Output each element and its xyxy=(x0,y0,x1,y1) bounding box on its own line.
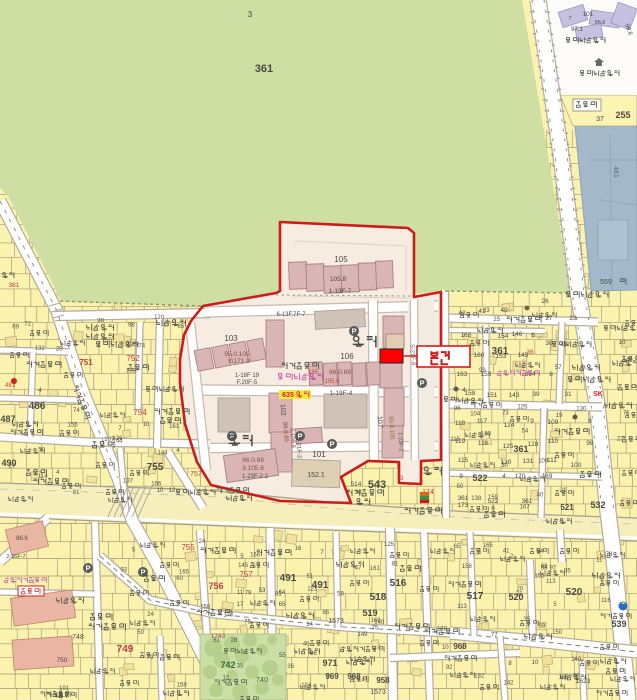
svg-text:757: 757 xyxy=(239,570,253,579)
svg-text:53: 53 xyxy=(259,588,266,594)
svg-text:55: 55 xyxy=(279,653,286,659)
svg-text:170: 170 xyxy=(515,473,526,480)
svg-text:F.20F-5: F.20F-5 xyxy=(237,380,258,386)
svg-text:968: 968 xyxy=(453,642,467,651)
svg-text:742: 742 xyxy=(220,660,235,670)
svg-text:361: 361 xyxy=(513,444,528,454)
svg-text:125: 125 xyxy=(503,443,514,450)
svg-text:521: 521 xyxy=(560,503,574,512)
svg-text:37: 37 xyxy=(596,116,604,123)
svg-text:146: 146 xyxy=(512,331,523,338)
svg-text:123: 123 xyxy=(307,586,318,592)
svg-text:31: 31 xyxy=(564,391,572,398)
svg-text:364: 364 xyxy=(525,371,536,378)
svg-text:113: 113 xyxy=(457,604,467,610)
svg-text:69: 69 xyxy=(12,324,19,330)
svg-text:109: 109 xyxy=(538,459,549,465)
svg-text:118: 118 xyxy=(455,420,466,427)
svg-text:95.0.105: 95.0.105 xyxy=(224,351,250,358)
svg-text:757: 757 xyxy=(190,471,202,478)
svg-text:752: 752 xyxy=(126,354,140,363)
svg-text:522: 522 xyxy=(472,473,487,483)
svg-text:514: 514 xyxy=(351,481,362,488)
svg-text:1-18F 19: 1-18F 19 xyxy=(235,373,260,379)
svg-text:158: 158 xyxy=(177,683,188,689)
svg-text:7: 7 xyxy=(568,16,571,22)
svg-text:140: 140 xyxy=(571,657,582,663)
svg-text:166: 166 xyxy=(250,553,261,559)
svg-text:81: 81 xyxy=(275,591,282,597)
svg-text:166: 166 xyxy=(151,482,162,488)
svg-text:160: 160 xyxy=(474,352,485,359)
svg-text:30: 30 xyxy=(501,463,508,469)
svg-text:27: 27 xyxy=(8,464,15,470)
svg-text:138: 138 xyxy=(437,627,448,633)
svg-text:130: 130 xyxy=(576,407,587,413)
svg-text:109: 109 xyxy=(548,419,559,426)
svg-text:P: P xyxy=(351,327,356,336)
svg-text:102: 102 xyxy=(279,404,287,416)
svg-text:532: 532 xyxy=(590,500,605,510)
svg-text:116: 116 xyxy=(478,440,489,447)
svg-text:89: 89 xyxy=(541,564,548,570)
svg-text:168: 168 xyxy=(461,332,472,339)
svg-text:381: 381 xyxy=(9,282,20,289)
svg-text:255: 255 xyxy=(615,110,630,120)
svg-text:83: 83 xyxy=(483,308,490,314)
svg-text:36: 36 xyxy=(287,664,294,670)
svg-text:105: 105 xyxy=(334,255,348,264)
svg-text:155: 155 xyxy=(68,422,79,428)
svg-text:125: 125 xyxy=(384,542,395,548)
svg-text:12: 12 xyxy=(169,488,176,494)
svg-text:110: 110 xyxy=(548,438,559,445)
svg-text:1-19F-7: 1-19F-7 xyxy=(329,288,352,295)
svg-text:144: 144 xyxy=(157,451,168,457)
svg-text:104: 104 xyxy=(470,411,481,417)
svg-text:61: 61 xyxy=(213,638,220,644)
svg-text:86.0.89: 86.0.89 xyxy=(329,369,351,376)
svg-text:96.6: 96.6 xyxy=(595,20,606,26)
svg-text:750: 750 xyxy=(57,657,68,664)
svg-text:97.1: 97.1 xyxy=(571,27,583,33)
svg-text:10: 10 xyxy=(532,660,539,666)
svg-text:8: 8 xyxy=(588,418,592,425)
svg-text:30: 30 xyxy=(354,489,362,496)
svg-text:126: 126 xyxy=(112,436,123,442)
svg-text:749: 749 xyxy=(117,644,134,655)
svg-text:31: 31 xyxy=(516,592,523,598)
svg-text:65: 65 xyxy=(177,324,184,330)
svg-text:154: 154 xyxy=(498,333,509,340)
svg-text:24: 24 xyxy=(199,539,206,545)
svg-text:26: 26 xyxy=(541,298,549,305)
svg-text:115: 115 xyxy=(450,437,460,443)
svg-text:958: 958 xyxy=(376,676,390,685)
svg-text:116: 116 xyxy=(601,598,611,604)
svg-text:57: 57 xyxy=(555,365,562,371)
svg-text:969: 969 xyxy=(325,672,339,681)
svg-text:54: 54 xyxy=(522,429,529,435)
svg-text:10: 10 xyxy=(442,645,449,651)
svg-text:35: 35 xyxy=(237,664,244,670)
svg-text:461: 461 xyxy=(612,166,619,178)
svg-text:166: 166 xyxy=(559,675,570,681)
svg-text:38: 38 xyxy=(97,319,104,325)
svg-text:132: 132 xyxy=(35,346,46,352)
svg-text:1-23F-2 2: 1-23F-2 2 xyxy=(242,474,269,480)
svg-text:8: 8 xyxy=(549,371,553,378)
svg-text:60: 60 xyxy=(176,576,183,582)
svg-text:85: 85 xyxy=(564,569,571,575)
svg-text:47: 47 xyxy=(355,566,362,572)
svg-text:2-16F-7: 2-16F-7 xyxy=(6,554,25,560)
svg-text:153: 153 xyxy=(496,353,507,360)
svg-text:105.8: 105.8 xyxy=(330,276,347,283)
svg-text:101: 101 xyxy=(59,686,70,692)
svg-text:516: 516 xyxy=(390,578,407,589)
svg-text:SK: SK xyxy=(593,391,603,398)
svg-text:6-13F.7F-7: 6-13F.7F-7 xyxy=(276,312,306,318)
svg-text:30: 30 xyxy=(545,340,553,347)
svg-text:161: 161 xyxy=(370,566,381,572)
svg-text:86.0.89: 86.0.89 xyxy=(242,457,264,464)
svg-text:89: 89 xyxy=(573,673,580,679)
svg-text:100: 100 xyxy=(571,462,582,469)
svg-text:139: 139 xyxy=(126,368,137,374)
svg-text:131: 131 xyxy=(523,458,534,465)
svg-text:751: 751 xyxy=(79,358,93,367)
svg-text:755: 755 xyxy=(181,543,195,552)
svg-text:P: P xyxy=(419,379,424,388)
svg-text:P: P xyxy=(85,564,90,573)
svg-text:150: 150 xyxy=(552,630,563,636)
svg-text:124: 124 xyxy=(504,422,515,429)
svg-text:17: 17 xyxy=(237,602,244,608)
svg-text:117: 117 xyxy=(477,418,488,425)
svg-text:73: 73 xyxy=(397,476,404,482)
svg-text:145: 145 xyxy=(518,352,529,359)
svg-text:59: 59 xyxy=(539,623,546,629)
svg-text:105.8: 105.8 xyxy=(324,379,340,385)
svg-text:79: 79 xyxy=(245,591,252,597)
svg-text:137: 137 xyxy=(123,479,134,485)
svg-text:755: 755 xyxy=(147,462,164,473)
svg-text:107: 107 xyxy=(376,416,384,428)
svg-text:519: 519 xyxy=(362,608,377,618)
svg-text:12: 12 xyxy=(223,676,230,682)
svg-text:75: 75 xyxy=(372,626,379,632)
svg-text:152.1: 152.1 xyxy=(307,472,325,479)
svg-text:92: 92 xyxy=(446,665,453,671)
svg-text:75: 75 xyxy=(244,620,251,626)
svg-text:98: 98 xyxy=(586,440,594,447)
svg-text:85: 85 xyxy=(322,610,329,616)
svg-text:167: 167 xyxy=(520,504,531,510)
svg-text:72: 72 xyxy=(24,322,31,328)
svg-text:635: 635 xyxy=(282,392,294,399)
svg-text:36: 36 xyxy=(310,651,317,657)
svg-text:41: 41 xyxy=(503,548,510,554)
svg-text:93: 93 xyxy=(120,567,127,573)
svg-text:9: 9 xyxy=(459,473,463,480)
svg-text:150: 150 xyxy=(102,338,113,344)
svg-text:120: 120 xyxy=(154,315,165,321)
svg-text:173: 173 xyxy=(458,502,469,509)
svg-text:756: 756 xyxy=(208,581,223,591)
svg-text:50: 50 xyxy=(456,484,463,490)
svg-text:1573: 1573 xyxy=(370,689,386,696)
svg-text:101: 101 xyxy=(312,450,326,459)
svg-text:128: 128 xyxy=(528,441,539,448)
svg-text:74: 74 xyxy=(138,344,145,350)
svg-text:40: 40 xyxy=(500,307,508,314)
svg-text:487: 487 xyxy=(0,414,15,424)
svg-text:81: 81 xyxy=(391,562,398,568)
svg-text:113: 113 xyxy=(546,579,556,585)
svg-text:520: 520 xyxy=(566,587,583,598)
svg-text:112: 112 xyxy=(560,342,570,348)
svg-text:86.6: 86.6 xyxy=(16,536,28,542)
svg-text:518: 518 xyxy=(370,592,387,603)
svg-text:159: 159 xyxy=(488,495,499,501)
svg-text:517: 517 xyxy=(467,591,484,602)
svg-text:1-19F-4: 1-19F-4 xyxy=(330,390,353,397)
svg-text:27: 27 xyxy=(545,315,553,322)
svg-text:125: 125 xyxy=(517,404,528,410)
svg-text:51: 51 xyxy=(306,574,313,580)
svg-text:491: 491 xyxy=(280,573,297,584)
svg-text:98: 98 xyxy=(128,323,135,329)
svg-text:740: 740 xyxy=(256,675,269,684)
svg-text:142: 142 xyxy=(503,680,514,686)
svg-text:28: 28 xyxy=(231,638,238,644)
svg-text:11: 11 xyxy=(237,590,244,596)
svg-text:25: 25 xyxy=(493,317,500,323)
svg-text:138: 138 xyxy=(471,496,482,502)
svg-text:361: 361 xyxy=(255,63,273,75)
svg-text:23: 23 xyxy=(569,315,577,322)
svg-text:158: 158 xyxy=(465,390,476,397)
svg-text:3: 3 xyxy=(248,10,253,19)
svg-text:486: 486 xyxy=(29,401,46,412)
svg-text:106: 106 xyxy=(340,352,354,361)
svg-text:40: 40 xyxy=(537,493,544,499)
svg-text:1573: 1573 xyxy=(328,618,344,625)
svg-text:103: 103 xyxy=(224,334,238,343)
svg-text:151: 151 xyxy=(487,392,498,399)
svg-text:6: 6 xyxy=(531,332,535,339)
svg-text:161: 161 xyxy=(169,424,180,430)
svg-text:3.105.8: 3.105.8 xyxy=(242,465,264,472)
svg-text:748: 748 xyxy=(72,634,84,641)
svg-text:27: 27 xyxy=(617,436,624,442)
svg-text:132: 132 xyxy=(474,674,485,680)
svg-text:39: 39 xyxy=(532,391,540,398)
svg-text:24: 24 xyxy=(147,612,154,618)
svg-text:40: 40 xyxy=(131,343,138,349)
svg-text:P: P xyxy=(329,440,334,449)
svg-text:20: 20 xyxy=(56,347,63,353)
svg-text:77: 77 xyxy=(491,632,498,638)
svg-text:58: 58 xyxy=(337,592,344,598)
svg-text:143: 143 xyxy=(509,392,520,399)
svg-text:11: 11 xyxy=(596,558,603,564)
svg-text:168: 168 xyxy=(371,618,382,624)
svg-text:145: 145 xyxy=(238,563,249,569)
svg-text:158: 158 xyxy=(200,605,211,611)
svg-text:559: 559 xyxy=(600,279,612,286)
svg-text:163: 163 xyxy=(457,371,468,378)
svg-text:4: 4 xyxy=(502,473,506,480)
svg-text:16: 16 xyxy=(295,546,302,552)
svg-text:971: 971 xyxy=(322,658,337,668)
svg-text:165: 165 xyxy=(483,543,494,549)
svg-text:81: 81 xyxy=(73,490,80,496)
svg-text:73: 73 xyxy=(502,411,509,417)
svg-text:93: 93 xyxy=(479,368,486,374)
svg-text:114: 114 xyxy=(38,474,48,480)
svg-text:P: P xyxy=(140,568,145,577)
svg-text:50: 50 xyxy=(137,630,144,636)
svg-text:10: 10 xyxy=(143,422,150,428)
svg-text:361: 361 xyxy=(458,495,469,502)
svg-text:8.171.9: 8.171.9 xyxy=(228,358,250,365)
svg-text:9: 9 xyxy=(530,418,534,425)
svg-text:115: 115 xyxy=(458,457,469,464)
svg-text:65: 65 xyxy=(279,602,286,608)
svg-text:96: 96 xyxy=(454,406,461,412)
svg-text:754: 754 xyxy=(133,408,147,417)
svg-text:170: 170 xyxy=(223,612,234,618)
svg-text:40: 40 xyxy=(303,641,310,647)
svg-text:158: 158 xyxy=(462,564,473,570)
svg-text:155: 155 xyxy=(534,574,545,580)
svg-text:10: 10 xyxy=(619,340,626,346)
svg-text:14: 14 xyxy=(306,622,313,628)
svg-text:539: 539 xyxy=(611,619,626,629)
svg-text:101: 101 xyxy=(583,11,594,18)
svg-text:19: 19 xyxy=(556,413,563,419)
svg-text:10: 10 xyxy=(157,488,164,494)
svg-text:149: 149 xyxy=(357,632,368,638)
svg-text:74: 74 xyxy=(73,408,80,414)
svg-text:165: 165 xyxy=(179,570,190,576)
svg-text:185: 185 xyxy=(308,370,319,376)
svg-text:6: 6 xyxy=(491,505,495,512)
